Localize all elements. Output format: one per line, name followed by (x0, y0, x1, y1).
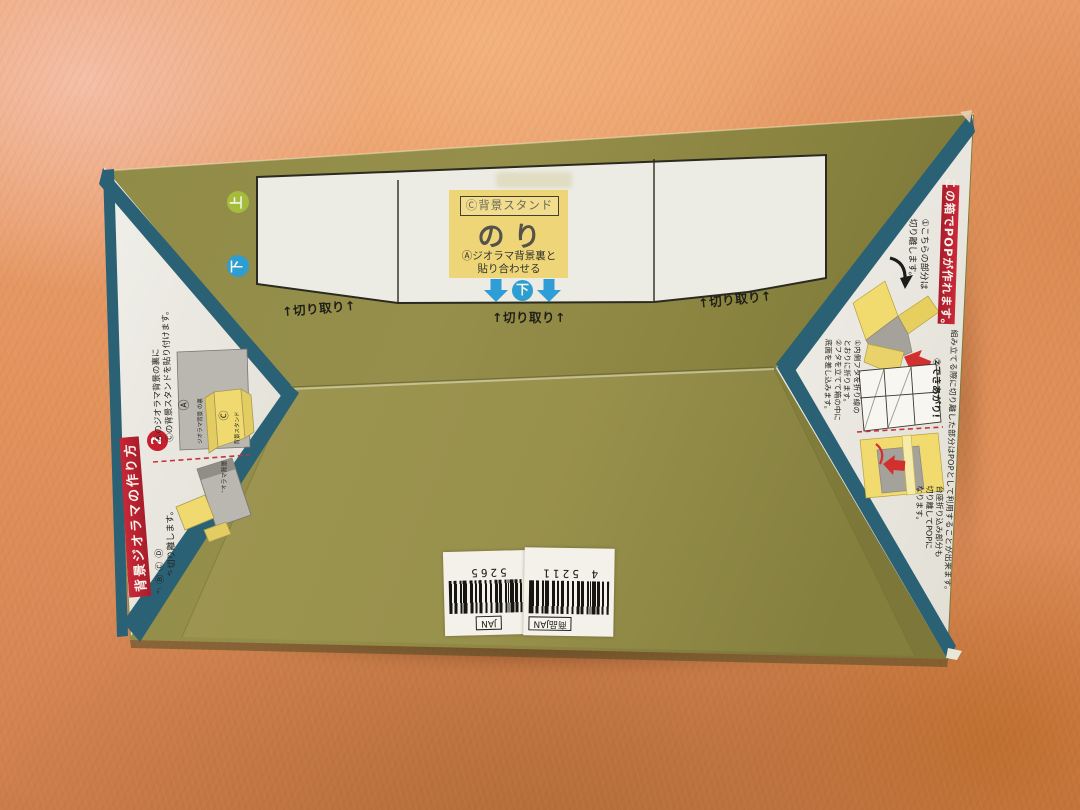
right-done-label: ②できあがり! (929, 358, 944, 442)
up-badge-label: 上 (231, 195, 244, 208)
jan-label-right: 商品JAN (528, 616, 572, 631)
glue-note-line1: Ⓐジオラマ背景裏と (446, 250, 572, 263)
right-flap-banner-label: この箱でPOPが作れます。 (938, 178, 959, 332)
stand-label-box: Ⓒ背景スタンド (460, 196, 559, 216)
right-fold-note: ①内側フタを折り線の とおりに折ります。 ②フタを立てて箱の中に 底面を差し込み… (822, 339, 862, 432)
stand-label: Ⓒ背景スタンド (466, 198, 554, 212)
barcode-digits-left: 5265 (448, 565, 526, 580)
cut-label-center: ↑切り取り↑ (492, 307, 566, 326)
down-badge-side: 下 (227, 255, 249, 277)
glue-note-line2: 貼り合わせる (446, 263, 572, 276)
diagram-label-c: Ⓒ (216, 411, 231, 421)
barcode-bars-left (449, 579, 528, 614)
jan-label-left: JAN (476, 616, 502, 631)
diagram-caption-c: 背景スタンド (233, 410, 241, 446)
barcode-sticker-right: 商品JAN 4 5211 (523, 547, 615, 637)
barcode-bars-right (529, 580, 610, 614)
right-step1-text: ①こちらの部分は 切り離します。 (905, 218, 929, 300)
glue-note: Ⓐジオラマ背景裏と 貼り合わせる (446, 250, 572, 275)
down-badge-side-label: 下 (231, 259, 244, 272)
left-step2-text: Ⓐのジオラマ背景の裏に Ⓒの背景スタンドを貼り付けます。 (150, 302, 177, 443)
barcode-digits-right: 4 5211 (529, 566, 609, 580)
barcode-sticker-left: JAN 5265 (443, 550, 533, 636)
down-badge-center-label: 下 (516, 284, 529, 297)
glue-label: のり (450, 215, 568, 254)
right-pedestal-note: 台座折り込み部分も 切り離してPOPに なります。 (912, 485, 944, 572)
up-badge: 上 (227, 191, 249, 213)
down-badge-center: 下 (512, 280, 533, 301)
ink-ghost-smudge (496, 172, 572, 188)
diagram-label-a: Ⓐ (176, 400, 192, 411)
right-flap-banner: この箱でPOPが作れます。 (938, 185, 960, 325)
diagram-caption-a: ジオラマ背景 の裏 (196, 397, 204, 445)
